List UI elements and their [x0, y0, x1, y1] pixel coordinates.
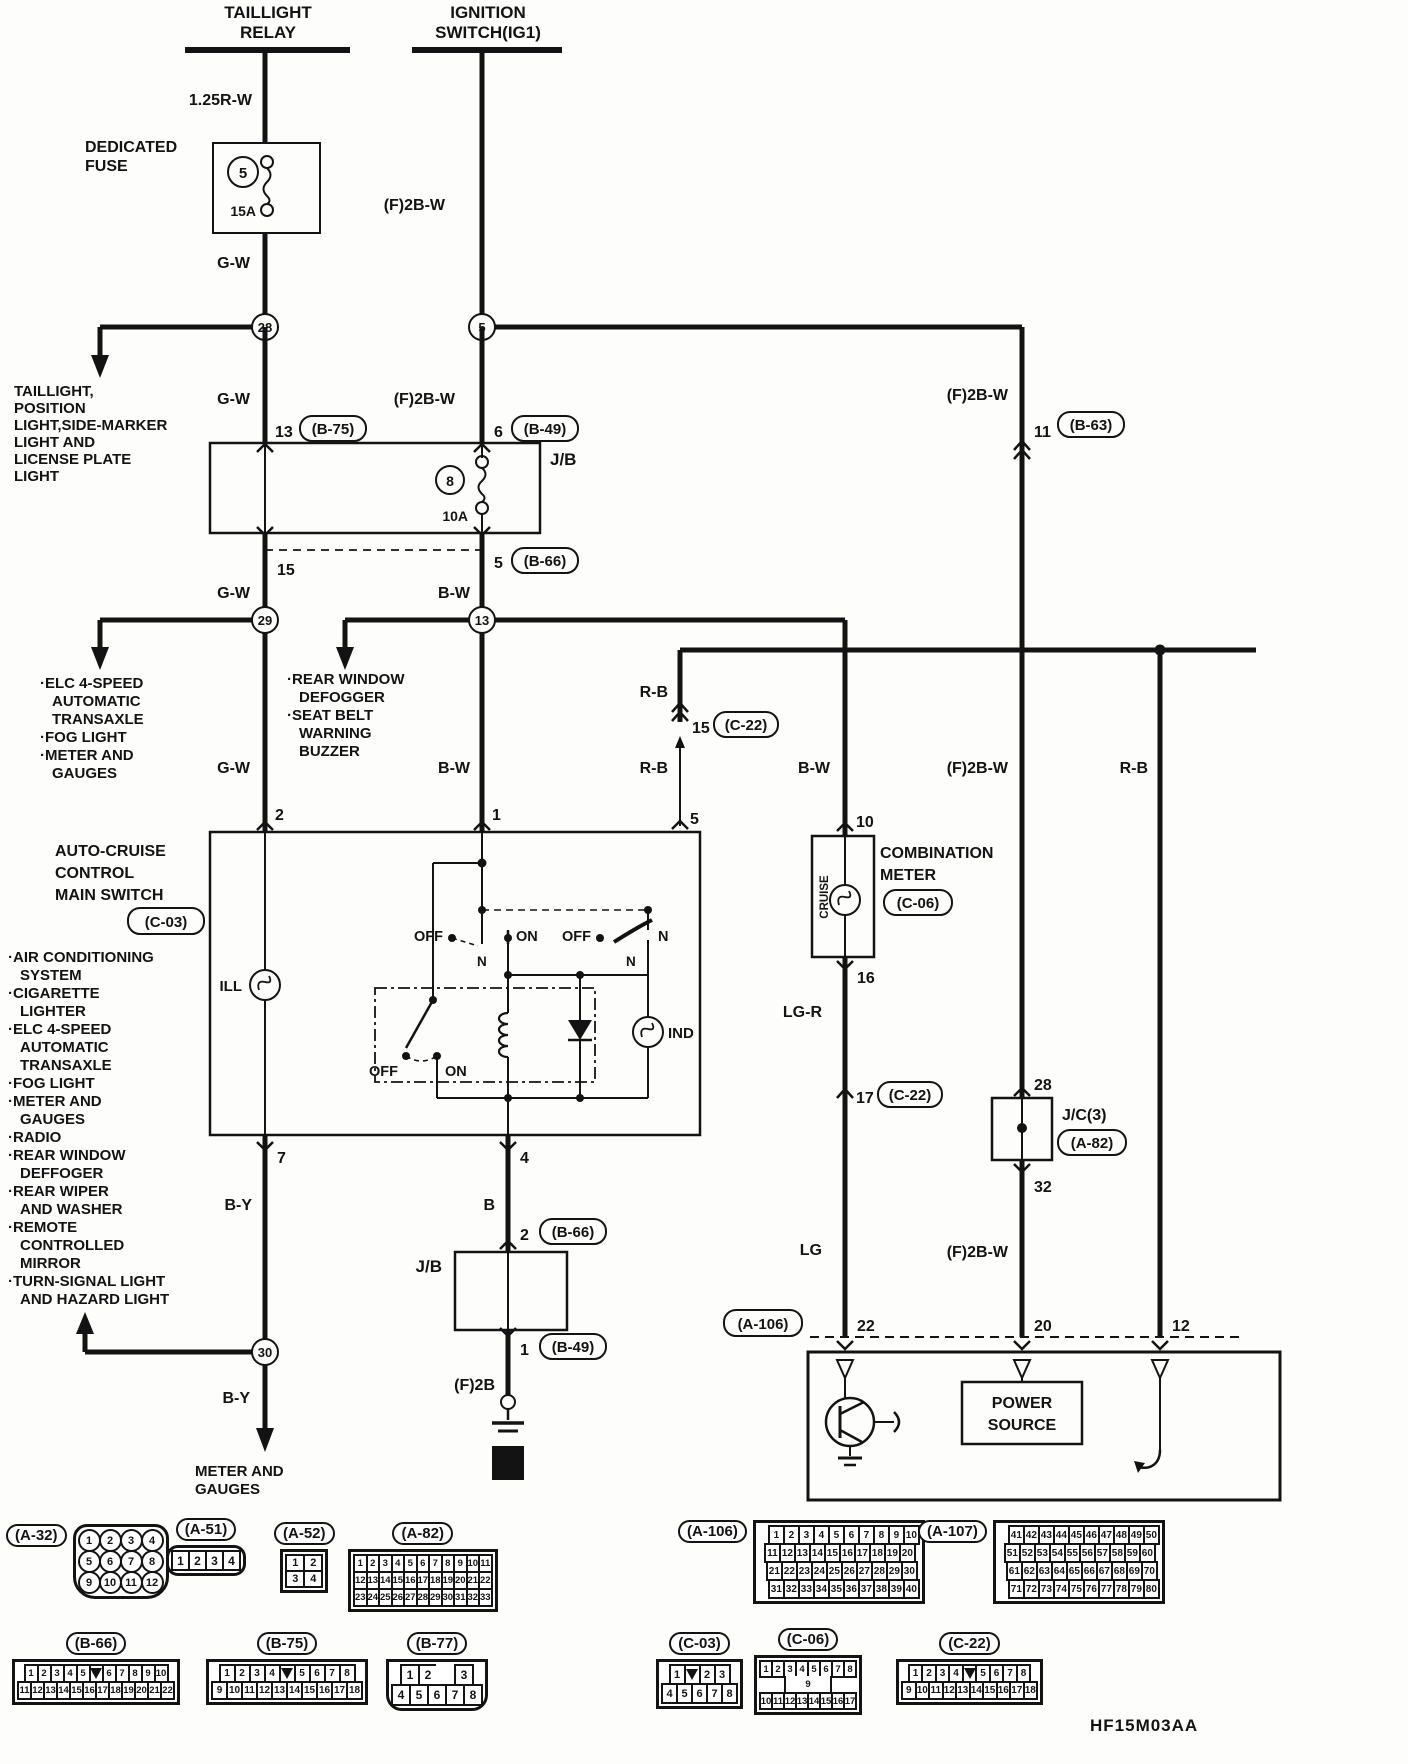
pin-cell: 18: [1023, 1681, 1039, 1700]
power-source-label2: SOURCE: [988, 1417, 1057, 1434]
connector-chart-A-51: (A-51)1234: [166, 1518, 246, 1576]
connector-ref-b49: (B-49): [524, 421, 567, 438]
svg-text:·REAR WIPER: ·REAR WIPER: [8, 1183, 109, 1200]
jb-fuse-rating: 10A: [442, 508, 468, 524]
branch-dest: TAILLIGHT,: [14, 383, 94, 400]
pin-cell: 33: [478, 1588, 493, 1607]
connector-pin-grid: 1234567891011121314151617: [754, 1655, 862, 1715]
branch-dest: GAUGES: [52, 765, 117, 782]
combination-meter: 10 CRUISE COMBINATION METER (C-06) 16: [812, 620, 993, 987]
pin-cell: 5: [409, 1684, 429, 1706]
connector-ref-b49: (B-49): [552, 1339, 595, 1356]
ignition-switch-title2: SWITCH(IG1): [435, 23, 541, 42]
node-29-label: 29: [258, 613, 272, 628]
pin-cell: 60: [1139, 1543, 1156, 1563]
connector-pin-grid: 12345678910111213141516171819202122: [12, 1659, 180, 1705]
transistor-symbol: [826, 1378, 899, 1465]
branch-dest: ·REAR WINDOW: [287, 671, 405, 688]
wire-label: B-W: [438, 760, 471, 777]
auto-cruise-main-switch: AUTO-CRUISE CONTROL MAIN SWITCH (C-03) I…: [55, 832, 700, 1135]
branch-dest: TRANSAXLE: [52, 711, 144, 728]
splice-node-30: 30 B-Y METER AND GAUGES: [76, 1312, 284, 1498]
pin-cell: 2: [99, 1529, 122, 1552]
connector-chart-label: (A-52): [274, 1522, 335, 1545]
connector-pin-grid: 1234: [166, 1545, 246, 1576]
wire-label: B-Y: [224, 1197, 252, 1214]
branch-dest: GAUGES: [195, 1481, 260, 1498]
pin-number: 15: [692, 720, 710, 737]
connector-chart-label: (A-82): [392, 1522, 453, 1545]
wiring-diagram-page: TAILLIGHT RELAY 1.25R-W IGNITION SWITCH(…: [0, 0, 1408, 1764]
svg-text:·REMOTE: ·REMOTE: [8, 1219, 77, 1236]
svg-text:·CIGARETTE: ·CIGARETTE: [8, 985, 100, 1002]
branch-dest: LIGHT AND: [14, 434, 95, 451]
pin-number: 22: [857, 1318, 875, 1335]
wire-label: LG: [800, 1242, 822, 1259]
pin-number: 11: [1034, 424, 1051, 441]
branch-dest: LIGHT,SIDE-MARKER: [14, 417, 168, 434]
branch-dest: ·ELC 4-SPEED: [40, 675, 144, 692]
wire-label: R-B: [640, 684, 668, 701]
pin-number: 4: [520, 1150, 529, 1167]
connector-chart-B-66: (B-66)1234567891011121314151617181920212…: [12, 1632, 180, 1705]
wire-label: G-W: [217, 760, 251, 777]
wire-label: B-W: [798, 760, 831, 777]
svg-text:TRANSAXLE: TRANSAXLE: [20, 1057, 112, 1074]
svg-text:·FOG LIGHT: ·FOG LIGHT: [8, 1075, 95, 1092]
acms-title3: MAIN SWITCH: [55, 887, 163, 904]
connector-chart-label: (B-66): [66, 1632, 127, 1655]
pin-number: 5: [690, 811, 699, 828]
diagram-code: HF15M03AA: [1090, 1716, 1198, 1736]
wire-label: G-W: [217, 255, 251, 272]
pin-number: 2: [275, 807, 284, 824]
pin-number: 17: [856, 1090, 874, 1107]
connector-ref-a82: (A-82): [1071, 1135, 1114, 1152]
a106-connector-line: (A-106) 22 20 12: [724, 1310, 1240, 1349]
schematic-canvas: TAILLIGHT RELAY 1.25R-W IGNITION SWITCH(…: [0, 0, 1408, 1764]
pin-cell: 12: [141, 1571, 164, 1594]
pin-number: 2: [520, 1227, 529, 1244]
connector-ref-b66: (B-66): [552, 1224, 595, 1241]
connector-pin-grid: 1234: [280, 1549, 328, 1593]
pin-number: 10: [856, 814, 874, 831]
ground-ref-number: 5: [502, 1452, 514, 1477]
comb-meter-title: COMBINATION: [880, 845, 993, 862]
connector-ref-a106: (A-106): [738, 1316, 789, 1333]
branch-dest: AUTOMATIC: [52, 693, 141, 710]
connector-ref-c22: (C-22): [725, 717, 768, 734]
pin-number: 28: [1034, 1077, 1052, 1094]
svg-text:GAUGES: GAUGES: [20, 1111, 85, 1128]
connector-chart-label: (A-106): [678, 1520, 747, 1543]
connector-ref-b75: (B-75): [312, 421, 355, 438]
splice-node-29: 29 ·ELC 4-SPEED AUTOMATIC TRANSAXLE ·FOG…: [40, 607, 278, 782]
pin-cell: 8: [721, 1683, 738, 1704]
connector-chart-A-82: (A-82)1234567891011121314151617181920212…: [348, 1522, 498, 1612]
dedicated-fuse-label2: FUSE: [85, 158, 128, 175]
comb-meter-title2: METER: [880, 867, 936, 884]
switch-n-label: N: [477, 954, 487, 969]
branch-dest: ·FOG LIGHT: [40, 729, 127, 746]
wire-label: 1.25R-W: [189, 92, 253, 109]
connector-pin-grid: 123456789101112131415161718: [896, 1659, 1043, 1705]
svg-text:·ELC 4-SPEED: ·ELC 4-SPEED: [8, 1021, 112, 1038]
wire-label: R-B: [1120, 760, 1148, 777]
branch-dest: LIGHT: [14, 468, 59, 485]
ground-hook-symbol: [1134, 1378, 1160, 1473]
pin-cell: 22: [160, 1681, 175, 1700]
pin-cell: 4: [141, 1529, 164, 1552]
pin-cell: 20: [899, 1543, 916, 1563]
connector-chart-label: (A-107): [918, 1520, 987, 1543]
pin-cell: 1: [78, 1529, 101, 1552]
jb-lower-run: 2 (B-66) J/B 1 (B-49) (F)2B 5: [416, 1219, 606, 1480]
pin-cell: 10: [99, 1571, 122, 1594]
connector-chart-label: (B-75): [257, 1632, 318, 1655]
pin-cell: 3: [285, 1570, 305, 1588]
pin-cell: 4: [391, 1684, 411, 1706]
connector-ref-c03: (C-03): [145, 914, 188, 931]
branch-dest: METER AND: [195, 1463, 284, 1480]
jb-fuse-number: 8: [446, 473, 454, 489]
connector-ref-c22: (C-22): [889, 1087, 932, 1104]
svg-text:·RADIO: ·RADIO: [8, 1129, 62, 1146]
wire-label: (F)2B-W: [947, 760, 1009, 777]
switch-off-label: OFF: [369, 1064, 398, 1080]
pin-cell: 3: [120, 1529, 143, 1552]
pin-cell: 4: [303, 1570, 323, 1588]
svg-text:AND HAZARD LIGHT: AND HAZARD LIGHT: [20, 1291, 169, 1308]
lg-run: LG-R 17 (C-22) LG: [783, 957, 942, 1337]
connector-ref-c06: (C-06): [897, 895, 940, 912]
blank-slot: [436, 1664, 456, 1686]
pin-cell: 17: [843, 1692, 857, 1710]
wire-label: B: [483, 1197, 495, 1214]
svg-text:CONTROLLED: CONTROLLED: [20, 1237, 124, 1254]
wire-label: (F)2B-W: [947, 387, 1009, 404]
pin-cell: 8: [141, 1550, 164, 1573]
pin-number: 6: [494, 424, 503, 441]
pin-number: 1: [520, 1342, 529, 1359]
connector-ref-b63: (B-63): [1070, 417, 1113, 434]
wire-label: (F)2B-W: [384, 197, 446, 214]
connector-pin-grid: 4142434445464748495051525354555657585960…: [993, 1520, 1165, 1604]
taillight-relay-feed: TAILLIGHT RELAY 1.25R-W: [185, 3, 350, 143]
connector-chart-C-03: (C-03)12345678: [656, 1632, 743, 1709]
svg-text:·AIR CONDITIONING: ·AIR CONDITIONING: [8, 949, 154, 966]
connector-chart-A-52: (A-52)1234: [274, 1522, 335, 1593]
ground-symbol: [501, 1395, 515, 1409]
wire-label: B-Y: [222, 1390, 250, 1407]
pin-number: 20: [1034, 1318, 1052, 1335]
jb-label: J/B: [550, 450, 576, 469]
pin-cell: 11: [120, 1571, 143, 1594]
dedicated-fuse-label: DEDICATED: [85, 139, 177, 156]
connector-ref-b66: (B-66): [524, 553, 567, 570]
ignition-switch-feed: IGNITION SWITCH(IG1) (F)2B-W: [384, 3, 562, 314]
connector-chart-A-106: (A-106)123456789101112131415161718192021…: [678, 1520, 925, 1604]
svg-text:AND WASHER: AND WASHER: [20, 1201, 123, 1218]
branch-dest: LICENSE PLATE: [14, 451, 131, 468]
pin-cell: 4: [222, 1550, 241, 1571]
taillight-relay-title: TAILLIGHT: [224, 3, 312, 22]
pin-cell: 9: [78, 1571, 101, 1594]
wire-label: G-W: [217, 391, 251, 408]
pin-cell: 2: [418, 1664, 438, 1686]
svg-text:AUTOMATIC: AUTOMATIC: [20, 1039, 109, 1056]
connector-pin-grid: 123456789101112131415161718: [206, 1659, 368, 1705]
pin-cell: 8: [463, 1684, 483, 1706]
joint-connector-jc3: 28 J/C(3) (A-82) 32 (F)2B-W: [947, 1077, 1126, 1261]
wire-label: B-W: [438, 585, 471, 602]
fuse-rating: 15A: [230, 203, 256, 219]
node-30-label: 30: [258, 1345, 272, 1360]
connector-chart-A-107: (A-107)414243444546474849505152535455565…: [918, 1520, 1165, 1604]
branch-dest: POSITION: [14, 400, 86, 417]
connector-chart-label: (C-03): [669, 1632, 730, 1655]
connector-chart-label: (A-51): [176, 1518, 237, 1541]
pin-number: 12: [1172, 1318, 1190, 1335]
wire-label: (F)2B-W: [947, 1244, 1009, 1261]
branch-dest: ·SEAT BELT: [287, 707, 373, 724]
switch-on-label: ON: [516, 929, 538, 945]
body-unit-box: POWER SOURCE: [808, 1352, 1280, 1500]
connector-pin-grid: 123456789101112: [73, 1524, 169, 1599]
connector-chart-label: (C-22): [939, 1632, 1000, 1655]
switch-on-label: ON: [445, 1064, 467, 1080]
branch-dest: BUZZER: [299, 743, 360, 760]
wire-label: (F)2B-W: [394, 391, 456, 408]
b63-connector-point: (F)2B-W 11 (B-63): [947, 387, 1124, 459]
connector-chart-C-06: (C-06)1234567891011121314151617: [754, 1628, 862, 1715]
pin-cell: 3: [714, 1664, 731, 1685]
connector-pin-grid: 12345678: [656, 1659, 743, 1709]
pin-cell: 3: [454, 1664, 474, 1686]
fuse-number: 5: [239, 165, 247, 182]
connected-systems-list: ·AIR CONDITIONING SYSTEM ·CIGARETTE LIGH…: [8, 949, 169, 1308]
wire-label: (F)2B: [454, 1377, 495, 1394]
pin-cell: 50: [1143, 1525, 1160, 1545]
switch-n-label: N: [626, 954, 636, 969]
node-13-label: 13: [475, 613, 489, 628]
pin-cell: 6: [427, 1684, 447, 1706]
wire-label: G-W: [217, 585, 251, 602]
jb-label: J/B: [416, 1257, 442, 1276]
pin-number: 1: [492, 807, 501, 824]
connector-pin-grid: 12345678: [386, 1659, 488, 1711]
pin-number: 13: [275, 424, 293, 441]
ind-lamp-label: IND: [668, 1025, 694, 1042]
svg-text:·TURN-SIGNAL LIGHT: ·TURN-SIGNAL LIGHT: [8, 1273, 165, 1290]
acms-title2: CONTROL: [55, 865, 134, 882]
pin-cell: 8: [843, 1660, 857, 1678]
ignition-switch-title: IGNITION: [450, 3, 526, 22]
pin-number: 5: [494, 555, 503, 572]
pin-cell: 1: [400, 1664, 420, 1686]
connector-chart-label: (A-32): [6, 1524, 67, 1547]
svg-text:·METER AND: ·METER AND: [8, 1093, 102, 1110]
switch-off-label: OFF: [414, 929, 443, 945]
pin-cell: 70: [1141, 1561, 1158, 1581]
pin-cell: 7: [120, 1550, 143, 1573]
connector-chart-B-77: (B-77)12345678: [386, 1632, 488, 1711]
branch-dest: ·METER AND: [40, 747, 134, 764]
pin-number: 16: [857, 970, 875, 987]
svg-text:·REAR WINDOW: ·REAR WINDOW: [8, 1147, 126, 1164]
switch-on-label: N: [658, 929, 668, 945]
pin-cell: 6: [99, 1550, 122, 1573]
pin-cell: 80: [1143, 1579, 1160, 1599]
pin-number: 7: [277, 1150, 286, 1167]
connector-chart-label: (C-06): [778, 1628, 839, 1651]
connector-chart-label: (B-77): [407, 1632, 468, 1655]
pin-number: 32: [1034, 1179, 1052, 1196]
switch-off-label: OFF: [562, 929, 591, 945]
svg-text:MIRROR: MIRROR: [20, 1255, 81, 1272]
svg-text:LIGHTER: LIGHTER: [20, 1003, 86, 1020]
jc3-label: J/C(3): [1062, 1107, 1106, 1124]
branch-dest: WARNING: [299, 725, 372, 742]
taillight-relay-title2: RELAY: [240, 23, 297, 42]
pin-cell: 18: [346, 1681, 363, 1700]
pin-cell: 30: [901, 1561, 918, 1581]
branch-dest: DEFOGGER: [299, 689, 385, 706]
pin-number: 15: [277, 562, 295, 579]
ill-lamp-label: ILL: [220, 978, 243, 995]
pin-cell: 7: [445, 1684, 465, 1706]
connector-chart-B-75: (B-75)123456789101112131415161718: [206, 1632, 368, 1705]
rb-feed-run: R-B 15 (C-22) R-B 5: [640, 645, 1256, 830]
power-source-label: POWER: [992, 1395, 1053, 1412]
connector-chart-A-32: (A-32)123456789101112: [6, 1524, 169, 1599]
acms-title: AUTO-CRUISE: [55, 843, 166, 860]
pin-cell: 5: [78, 1550, 101, 1573]
connector-pin-grid: 1234567891011121314151617181920212223242…: [753, 1520, 925, 1604]
connector-pin-grid: 1234567891011121314151617181920212223242…: [348, 1549, 498, 1612]
wire-label: LG-R: [783, 1004, 823, 1021]
svg-text:SYSTEM: SYSTEM: [20, 967, 82, 984]
connector-chart-C-22: (C-22)123456789101112131415161718: [896, 1632, 1043, 1705]
dedicated-fuse: DEDICATED FUSE 5 15A G-W: [85, 139, 320, 314]
wire-label: R-B: [640, 760, 668, 777]
svg-text:DEFFOGER: DEFFOGER: [20, 1165, 104, 1182]
cruise-gauge-label: CRUISE: [819, 875, 831, 919]
